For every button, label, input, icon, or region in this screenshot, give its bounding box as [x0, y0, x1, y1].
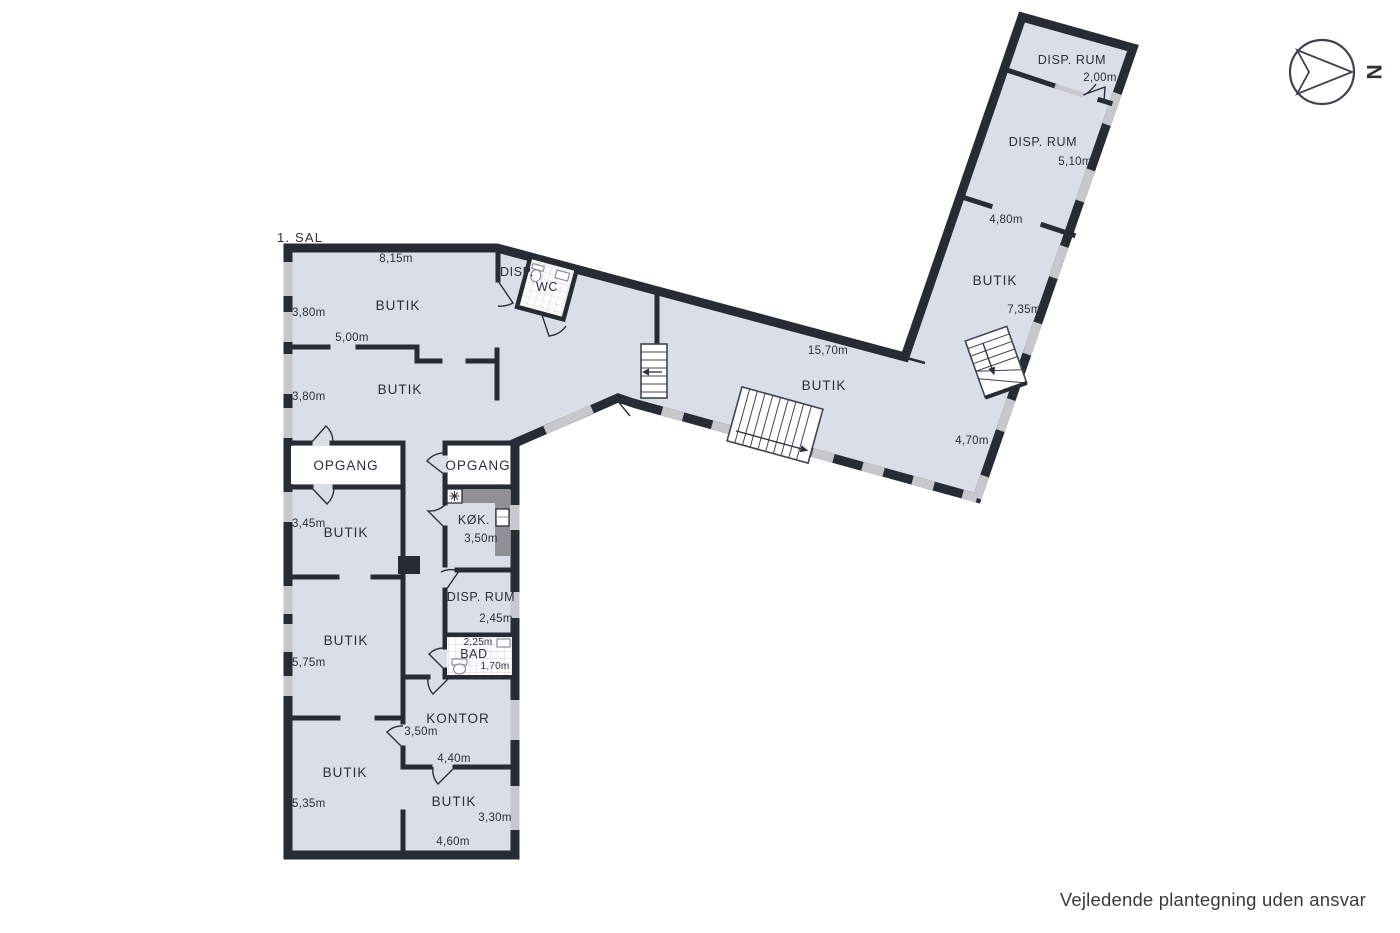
- dim-butik-575-depth: 5,75m: [292, 657, 325, 669]
- disclaimer-text: Vejledende plantegning uden ansvar: [1060, 889, 1366, 910]
- dim-kontor-depth: 3,50m: [404, 726, 437, 738]
- dim-bad-depth: 1,70m: [481, 661, 510, 672]
- room-label-disp-top: DISP.: [500, 265, 534, 279]
- room-label-opgang-left: OPGANG: [313, 458, 378, 473]
- room-label-butik-345: BUTIK: [324, 525, 369, 540]
- dim-corridor-width: 15,70m: [808, 345, 848, 357]
- dim-butik-345-depth: 3,45m: [292, 518, 325, 530]
- room-label-kok: KØK.: [458, 513, 490, 527]
- room-label-butik-535: BUTIK: [323, 765, 368, 780]
- room-label-butik-br: BUTIK: [432, 794, 477, 809]
- room-label-butik-top: BUTIK: [376, 298, 421, 313]
- dim-butik-mid-width: 5,00m: [335, 332, 368, 344]
- dim-kok-width: 3,50m: [464, 533, 497, 545]
- dim-wing-butik-width: 4,80m: [989, 214, 1022, 226]
- dim-wing-butik-bottom: 4,70m: [955, 435, 988, 447]
- dim-butik-br-depth: 3,30m: [478, 812, 511, 824]
- dim-butik-535-depth: 5,35m: [292, 798, 325, 810]
- compass-icon: N: [1290, 40, 1385, 104]
- room-label-bad: BAD: [460, 647, 488, 661]
- dim-wing-butik-depth: 7,35m: [1007, 304, 1040, 316]
- floorplan-page: N 1. SAL 8,15m BUTIK 3,80m DISP. WC 5,00…: [0, 0, 1400, 933]
- dim-kontor-width: 4,40m: [437, 753, 470, 765]
- freezer-icon: [450, 491, 460, 501]
- compass-north-label: N: [1362, 64, 1385, 79]
- room-label-wing-disp: DISP. RUM: [1009, 135, 1077, 149]
- floor-plan: N 1. SAL 8,15m BUTIK 3,80m DISP. WC 5,00…: [0, 0, 1400, 933]
- room-label-butik-corridor: BUTIK: [802, 378, 847, 393]
- room-label-opgang-right: OPGANG: [445, 458, 510, 473]
- dim-wing-disp-depth: 5,10m: [1058, 156, 1091, 168]
- dim-disp-rum-depth: 2,45m: [479, 613, 512, 625]
- dim-butik-top-depth: 3,80m: [292, 307, 325, 319]
- toilet-icon: [452, 659, 467, 674]
- room-label-butik-575: BUTIK: [324, 633, 369, 648]
- dim-butik-top-width: 8,15m: [379, 253, 412, 265]
- room-label-wing-butik: BUTIK: [973, 273, 1018, 288]
- dim-butik-br-width: 4,60m: [436, 836, 469, 848]
- room-label-wc: WC: [536, 280, 558, 294]
- chimney: [398, 556, 420, 574]
- dim-wing-disp-top-depth: 2,00m: [1083, 72, 1116, 84]
- room-label-disp-rum: DISP. RUM: [447, 590, 515, 604]
- dim-butik-mid-depth: 3,80m: [292, 391, 325, 403]
- bath-sink-icon: [497, 639, 510, 647]
- room-label-wing-disp-top: DISP. RUM: [1038, 53, 1106, 67]
- stair-corridor-left: [641, 344, 667, 398]
- room-label-kontor: KONTOR: [426, 711, 490, 726]
- plan-title: 1. SAL: [277, 230, 323, 245]
- room-label-butik-mid: BUTIK: [378, 382, 423, 397]
